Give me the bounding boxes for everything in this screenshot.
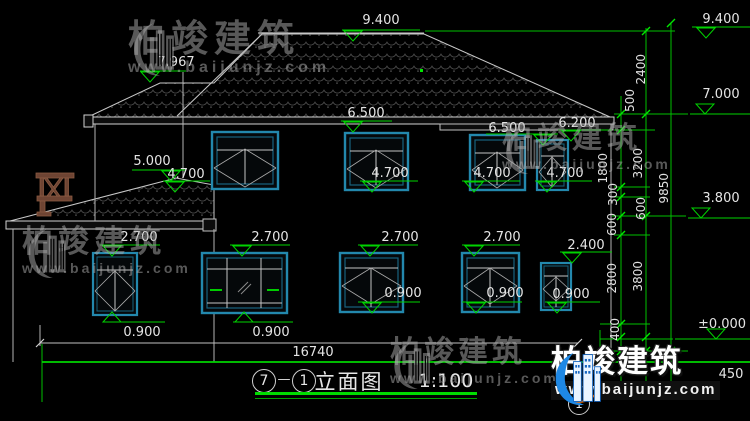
dim-500: 500 [623,89,637,112]
level-head1f-2: 2.700 [251,230,288,245]
title-underline-thick [255,392,477,395]
cad-elevation-canvas: 9.400 9.400 7.967 7.000 6.500 6.500 6.20… [0,0,750,421]
watermark-top-center: 柏竣建筑 www.baijunjz.com [128,20,330,76]
level-head1f-5: 2.400 [567,238,604,253]
watermark-right-center: 柏竣建筑 www.baijunjz.com [502,124,671,171]
title-underline-thin [255,398,477,399]
title-axis-start-bubble: 7 [252,369,276,393]
brand-logo-icon [22,226,74,282]
window-1f-2 [202,253,287,313]
brand-logo-icon [502,124,546,180]
level-ridge-right: 9.400 [702,12,739,27]
level-head1f-3: 2.700 [381,230,418,245]
title-axis-end-bubble: 1 [292,369,316,393]
level-sill1f-1: 0.900 [123,325,160,340]
brand-logo-icon [128,20,182,80]
level-eave-a: 6.500 [347,106,384,121]
watermark-left-middle: 柏竣建筑 www.baijunjz.com [22,226,191,275]
level-sill1f-2: 0.900 [252,325,289,340]
level-sill2f-2: 4.700 [371,166,408,181]
level-head1f-4: 2.700 [483,230,520,245]
level-ground: ±0.000 [698,317,746,332]
watermark-bottom-center: 柏竣建筑 www.baijunjz.com [390,338,559,385]
roof-reference-dot [420,69,423,72]
level-ridge-left: 9.400 [362,13,399,28]
dim-400: 400 [608,318,622,341]
dim-2800: 2800 [605,263,619,294]
dim-300: 300 [606,183,620,206]
level-7000: 7.000 [702,87,739,102]
level-sill1f-3: 0.900 [384,286,421,301]
dim-450: 450 [719,367,744,382]
dim-2400: 2400 [634,54,648,85]
level-sill1f-4: 0.900 [486,286,523,301]
dim-3800: 3800 [631,261,645,292]
brand-logo-color-icon [551,346,603,410]
brand-logo-icon [390,338,436,394]
level-sill2f-1: 4.700 [167,167,204,182]
dim-600b: 600 [605,213,619,236]
dim-9850: 9850 [657,173,671,204]
watermark-bottom-right-color: 柏竣建筑 www.baijunjz.com [551,346,720,400]
level-floor2: 3.800 [702,191,739,206]
level-wing-top: 5.000 [133,154,170,169]
dim-600a: 600 [634,197,648,220]
window-2f-1 [212,132,278,189]
dim-total-width: 16740 [292,345,333,360]
title-separator: — [278,372,291,387]
level-sill1f-5: 0.900 [552,287,589,302]
